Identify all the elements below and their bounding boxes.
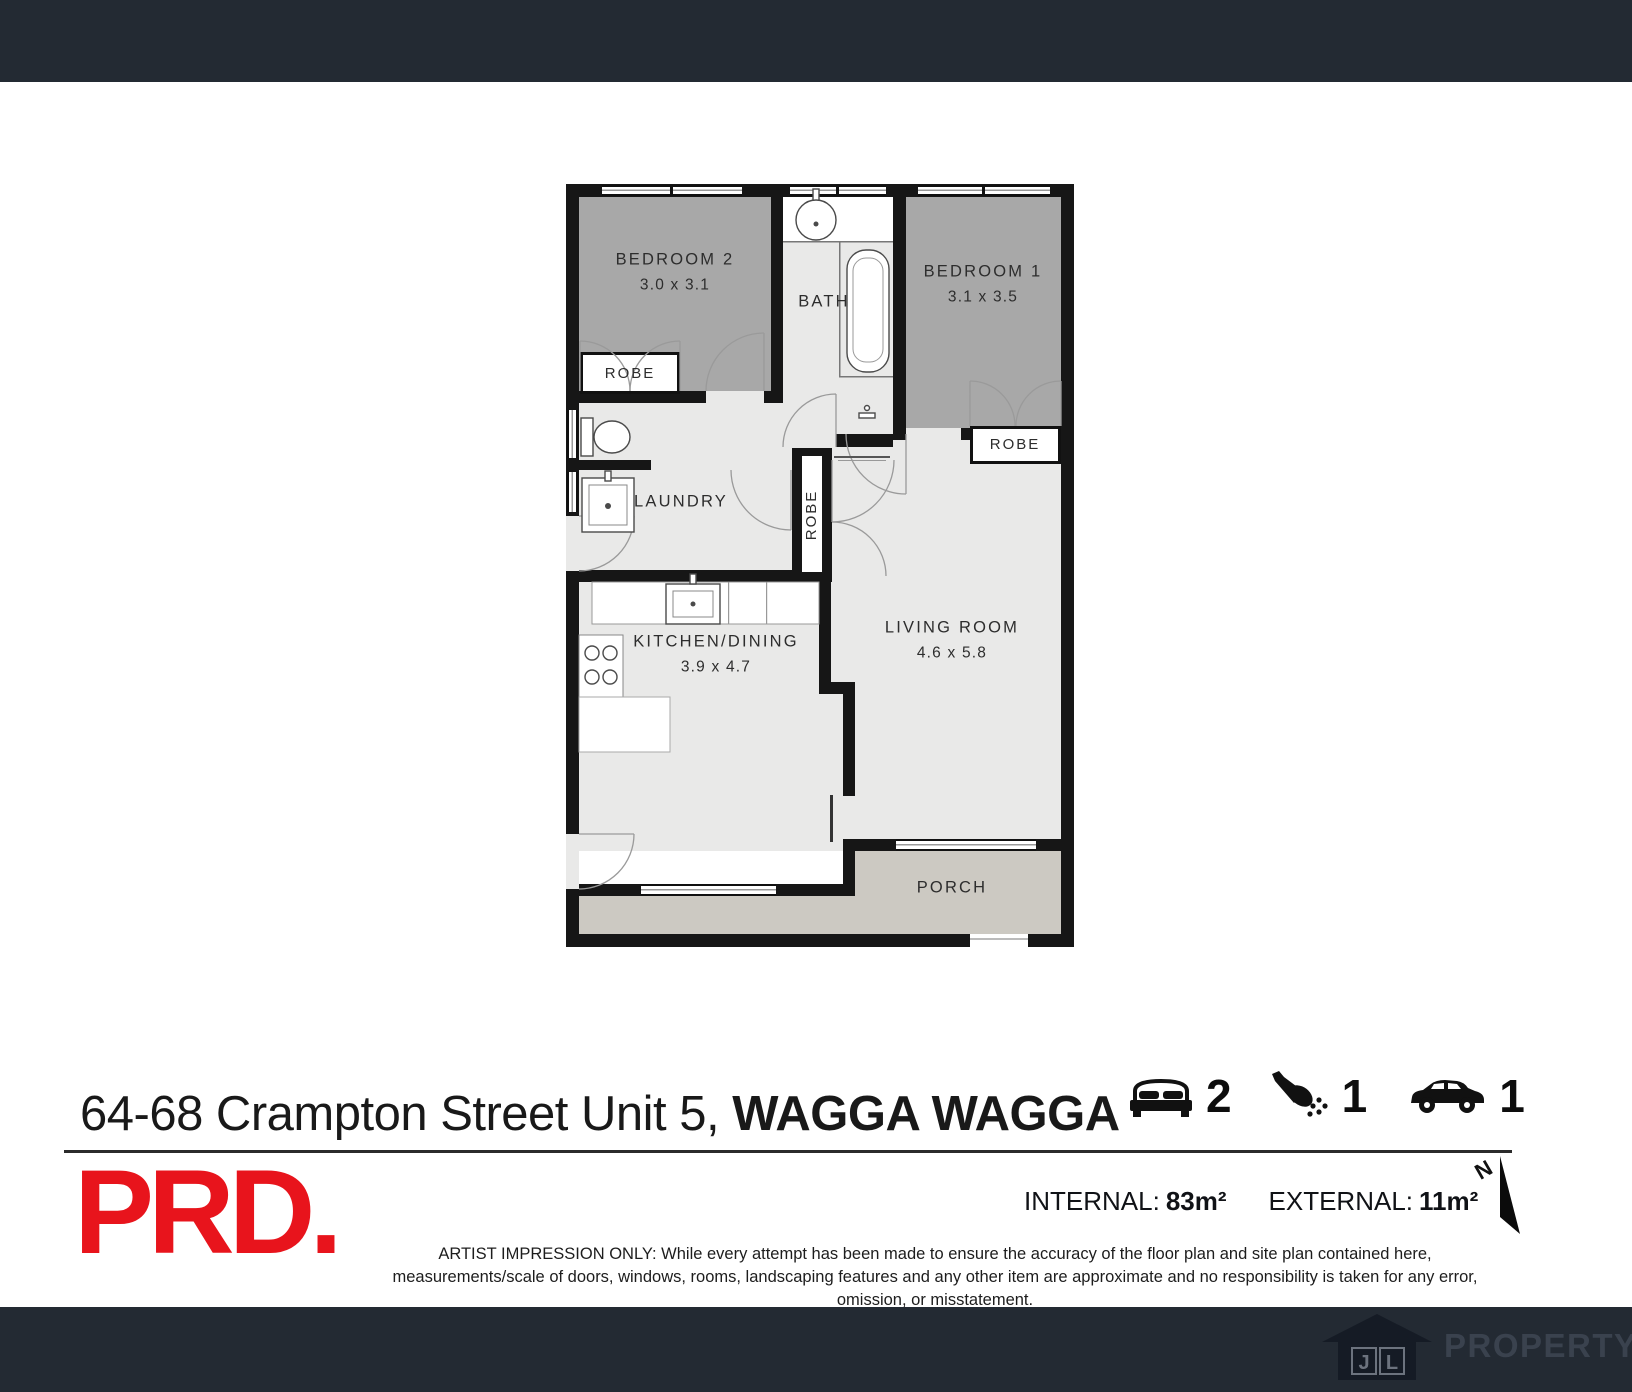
label-laundry: LAUNDRY [634, 490, 728, 515]
label-porch: PORCH [917, 876, 988, 901]
footer-initial-1: J [1358, 1352, 1369, 1374]
floorplan-page: BEDROOM 23.0 x 3.1 BATH BEDROOM 13.1 x 3… [0, 0, 1632, 1392]
jl-property-logo: J L PROPERTY [1316, 1312, 1632, 1380]
north-label: N [1470, 1155, 1496, 1185]
label-bath: BATH [798, 290, 850, 315]
open-door-leaf [830, 795, 833, 842]
label-bedroom1: BEDROOM 13.1 x 3.5 [924, 259, 1043, 309]
car-space-count: 1 [1499, 1069, 1525, 1123]
label-robe-bedroom2: ROBE [605, 363, 656, 386]
external-area: EXTERNAL:11m² [1269, 1186, 1479, 1217]
label-kitchen-dining: KITCHEN/DINING3.9 x 4.7 [633, 629, 799, 679]
bed-icon [1128, 1074, 1194, 1118]
area-summary: INTERNAL:83m² EXTERNAL:11m² [1024, 1186, 1478, 1217]
disclaimer-text: ARTIST IMPRESSION ONLY: While every atte… [360, 1243, 1510, 1312]
property-address: 64-68 Crampton Street Unit 5, WAGGA WAGG… [80, 1086, 1120, 1142]
floor-plan: BEDROOM 23.0 x 3.1 BATH BEDROOM 13.1 x 3… [566, 184, 1074, 947]
footer-brand-name: PROPERTY [1444, 1327, 1632, 1365]
address-street: 64-68 Crampton Street Unit 5, [80, 1087, 719, 1141]
feature-summary: 2 1 1 [1128, 1068, 1525, 1124]
address-locality: WAGGA WAGGA [732, 1087, 1119, 1141]
footer-initial-2: L [1386, 1352, 1398, 1374]
bathroom-count: 1 [1342, 1069, 1368, 1123]
top-bar [0, 0, 1632, 82]
label-robe-hall: ROBE [801, 490, 824, 541]
internal-area: INTERNAL:83m² [1024, 1186, 1227, 1217]
label-living-room: LIVING ROOM4.6 x 5.8 [885, 615, 1019, 665]
bedroom-count: 2 [1206, 1069, 1232, 1123]
label-robe-bedroom1: ROBE [990, 434, 1041, 457]
prd-agency-logo: PRD. [74, 1152, 337, 1272]
shower-icon [1272, 1071, 1330, 1121]
north-arrow-icon: N [1468, 1148, 1532, 1244]
label-bedroom2: BEDROOM 23.0 x 3.1 [616, 247, 735, 297]
car-icon [1407, 1075, 1487, 1117]
house-icon: J L [1316, 1312, 1438, 1380]
